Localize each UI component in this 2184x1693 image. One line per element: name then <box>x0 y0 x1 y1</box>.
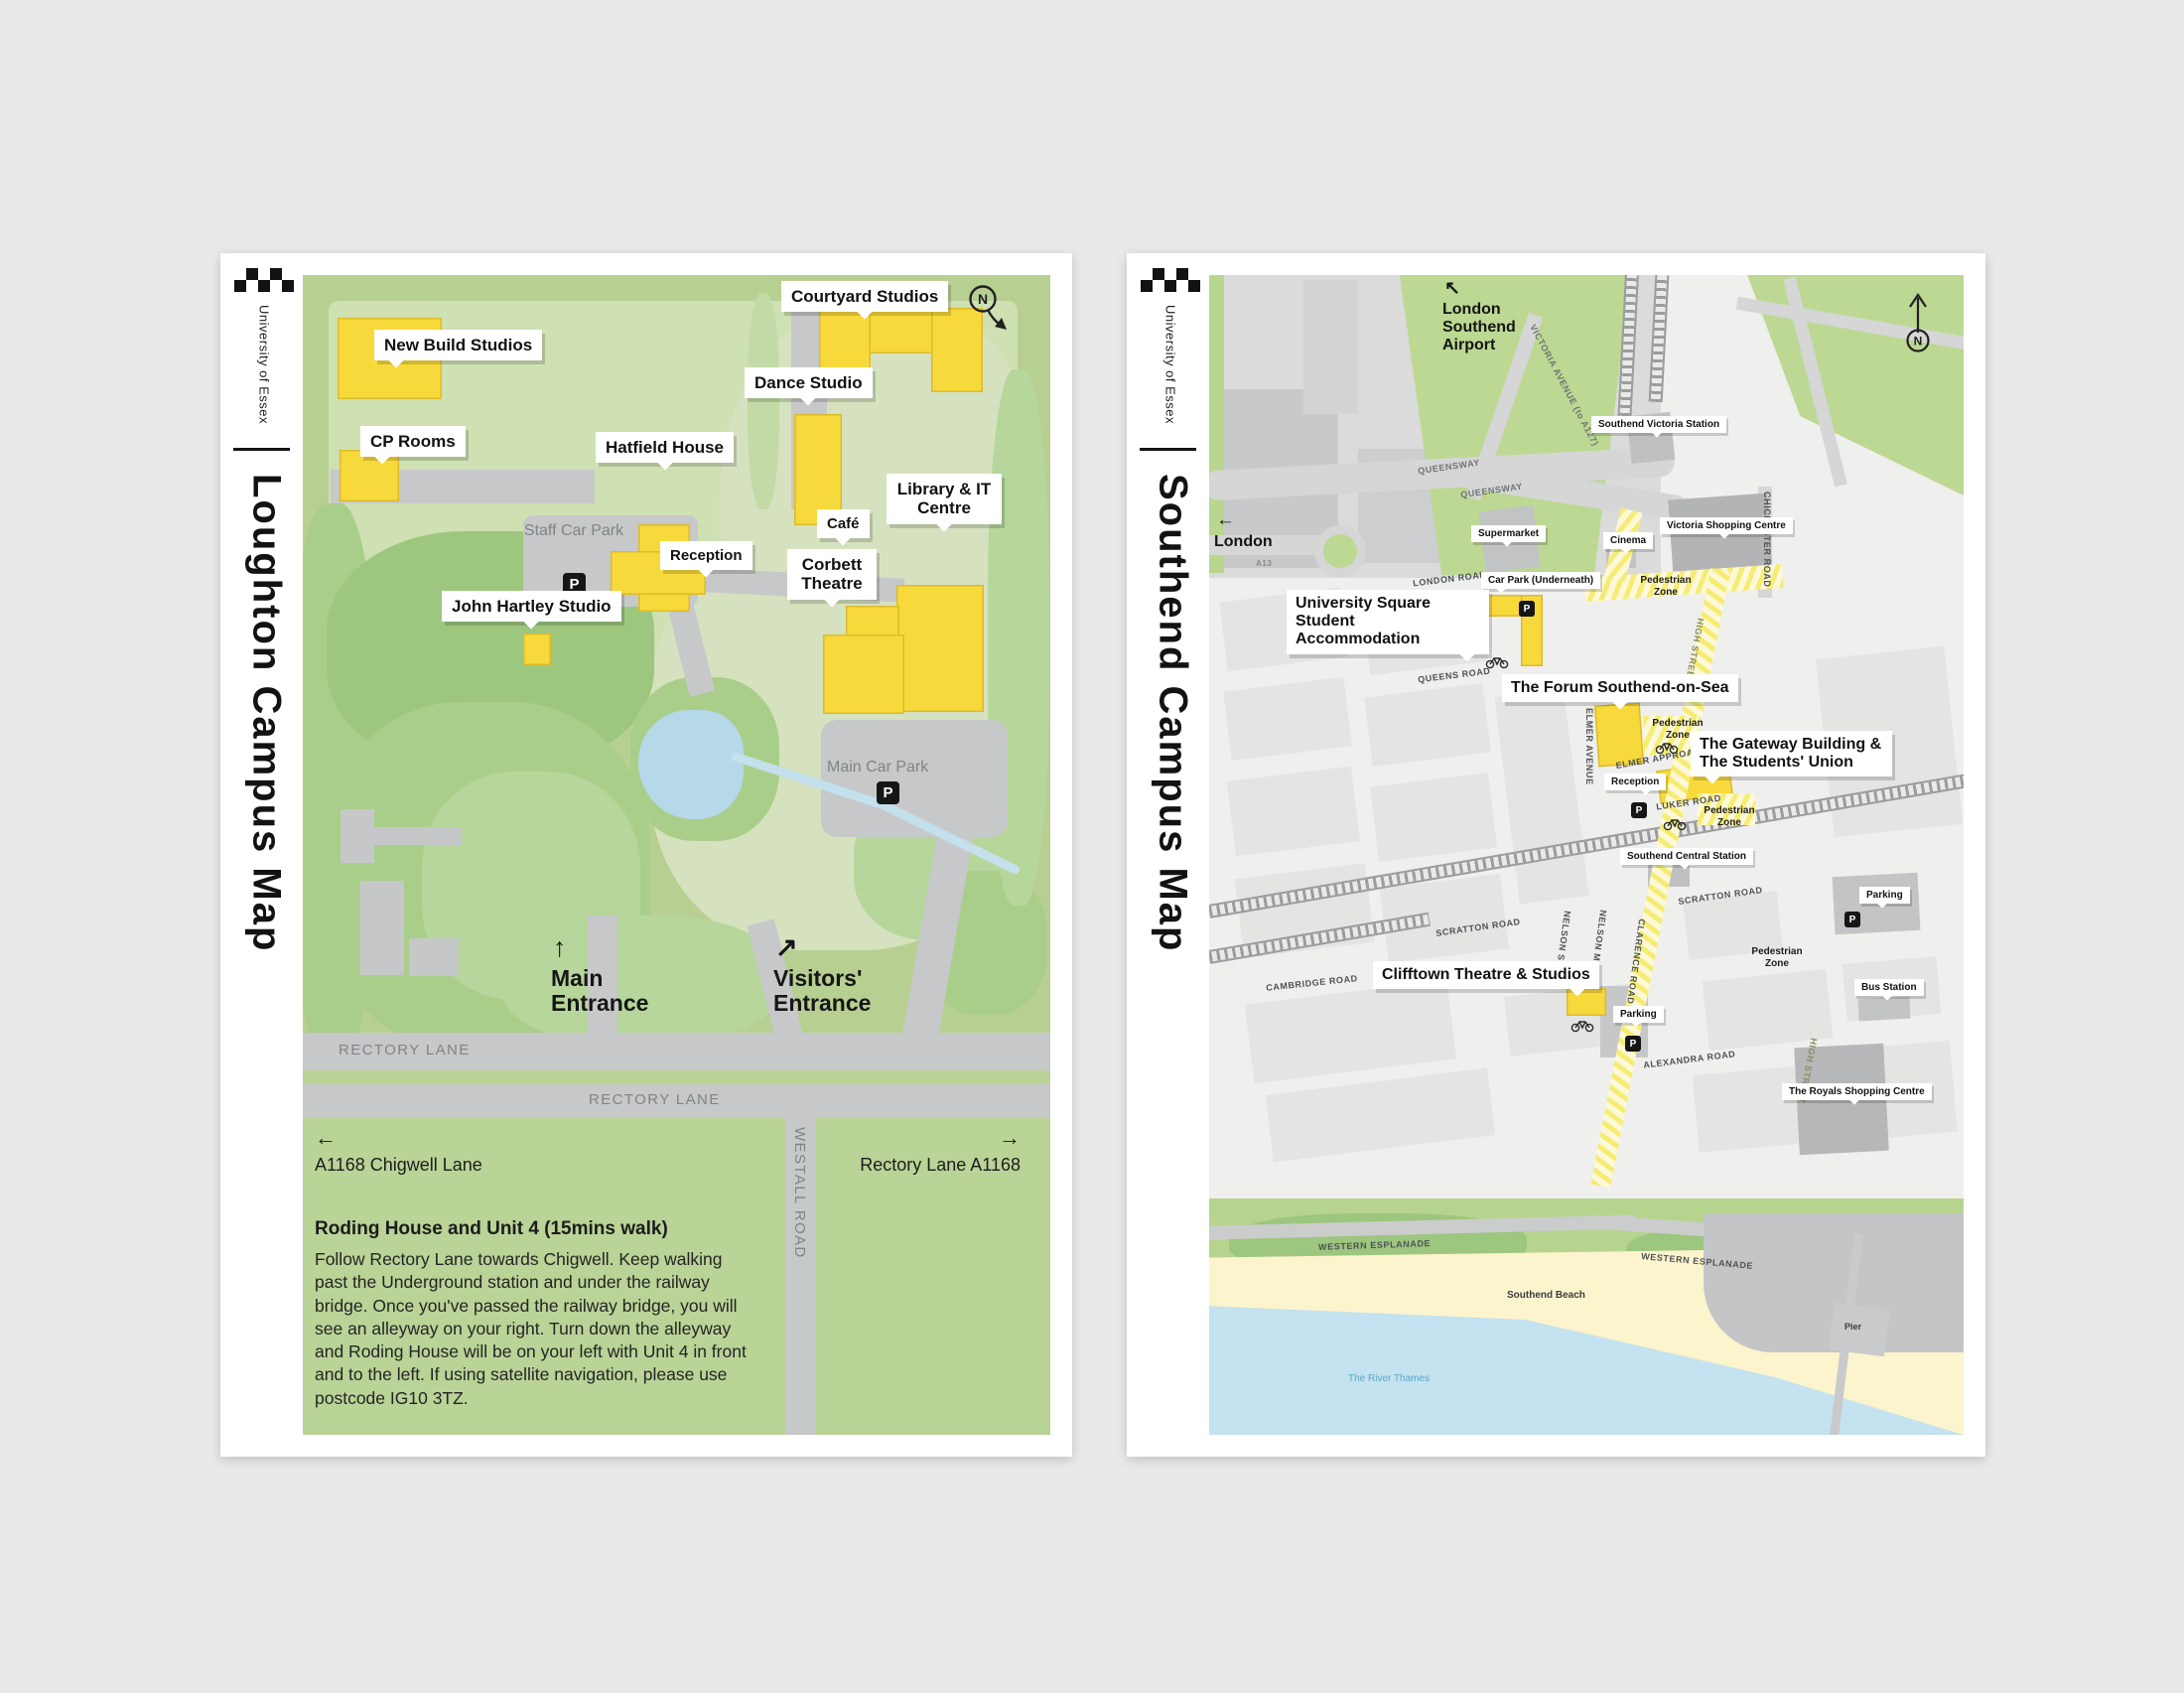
callout-library-it-centre: Library & IT Centre <box>887 474 1002 524</box>
pedestrian-zone-label: Pedestrian Zone <box>1698 805 1761 828</box>
north-arrow-icon: N <box>1904 291 1932 353</box>
a13-label: A13 <box>1256 559 1272 568</box>
john-hartley-studio-building <box>523 634 551 665</box>
callout-clifftown-theatre: Clifftown Theatre & Studios <box>1373 961 1599 989</box>
building <box>341 809 374 863</box>
bicycle-icon <box>1655 740 1679 755</box>
pond <box>638 710 744 819</box>
callout-cp-rooms: CP Rooms <box>360 426 466 457</box>
callout-cafe: Café <box>817 509 870 538</box>
london-label: London <box>1214 533 1273 551</box>
building <box>1303 280 1358 414</box>
page: University of Essex Loughton Campus Map <box>0 0 2184 1693</box>
visitors-entrance-arrow: ↗ <box>775 932 798 963</box>
loughton-map-card: University of Essex Loughton Campus Map <box>220 253 1072 1457</box>
driveway <box>372 827 462 845</box>
map-title: Loughton Campus Map <box>244 474 289 952</box>
rectory-a1168-arrow: → <box>999 1125 1021 1151</box>
airport-arrow: ↖ <box>1444 277 1460 300</box>
city-block <box>1364 683 1491 767</box>
callout-victoria-shopping-centre: Victoria Shopping Centre <box>1660 517 1793 534</box>
tree-row <box>748 293 779 509</box>
pedestrian-zone-label: Pedestrian Zone <box>1745 946 1809 969</box>
bicycle-icon <box>1570 1018 1594 1033</box>
university-of-essex-logo-icon <box>233 265 295 293</box>
building <box>360 881 404 975</box>
bus-station-building <box>1857 997 1910 1022</box>
city-block <box>1227 767 1360 857</box>
chigwell-lane-label: A1168 Chigwell Lane <box>315 1155 482 1176</box>
southend-sidebar: University of Essex Southend Campus Map <box>1127 253 1210 1457</box>
parking-icon: P <box>1844 912 1860 927</box>
alexandra-road-label: ALEXANDRA ROAD <box>1643 1049 1736 1069</box>
callout-parking: Parking <box>1859 887 1910 904</box>
southend-beach-label: Southend Beach <box>1507 1290 1585 1301</box>
callout-dance-studio: Dance Studio <box>745 367 873 398</box>
pier-label: Pier <box>1844 1322 1861 1332</box>
main-entrance-label: Main Entrance <box>551 966 690 1015</box>
building <box>409 938 459 976</box>
callout-bus-station: Bus Station <box>1854 979 1924 996</box>
svg-text:N: N <box>978 291 988 307</box>
directions-body: Follow Rectory Lane towards Chigwell. Ke… <box>315 1248 750 1410</box>
sidebar-divider <box>233 448 290 451</box>
callout-hatfield-house: Hatfield House <box>596 432 734 463</box>
sidebar-divider <box>1140 448 1196 451</box>
callout-reception: Reception <box>1604 774 1666 790</box>
callout-southend-victoria-station: Southend Victoria Station <box>1591 416 1726 433</box>
cambridge-road-label: CAMBRIDGE ROAD <box>1266 973 1358 993</box>
roundabout <box>1314 525 1366 577</box>
london-arrow: ← <box>1216 509 1235 531</box>
staff-car-park-label: Staff Car Park <box>519 521 628 540</box>
westall-road-label: WESTALL ROAD <box>791 1127 808 1259</box>
svg-text:N: N <box>1914 335 1923 349</box>
southend-map-card: University of Essex Southend Campus Map <box>1127 253 1985 1457</box>
city-block <box>1266 1068 1496 1163</box>
callout-new-build-studios: New Build Studios <box>374 330 542 360</box>
main-entrance-arrow: ↑ <box>553 932 567 963</box>
cp-rooms-building <box>340 450 399 501</box>
brand-name: University of Essex <box>1163 305 1178 424</box>
callout-car-park-underneath: Car Park (Underneath) <box>1481 572 1600 589</box>
airport-label: London Southend Airport <box>1442 301 1542 354</box>
bicycle-icon <box>1663 816 1687 831</box>
verge <box>303 1070 1050 1084</box>
city-block <box>1223 677 1352 761</box>
brand-name: University of Essex <box>257 305 272 424</box>
main-car-park-label: Main Car Park <box>827 758 928 776</box>
callout-gateway-building: The Gateway Building & The Students' Uni… <box>1691 731 1892 776</box>
callout-reception: Reception <box>660 541 752 570</box>
callout-courtyard-studios: Courtyard Studios <box>781 281 948 312</box>
river-thames-label: The River Thames <box>1348 1373 1430 1384</box>
rectory-lane-label: RECTORY LANE <box>339 1042 471 1058</box>
map-title: Southend Campus Map <box>1151 474 1195 952</box>
elmer-avenue-label: ELMER AVENUE <box>1584 708 1594 785</box>
rectory-a1168-label: Rectory Lane A1168 <box>860 1155 1021 1176</box>
loughton-map-canvas: P P Staff Car Park Main Car Park RECTORY… <box>303 275 1050 1435</box>
parking-icon: P <box>1631 802 1647 818</box>
callout-forum: The Forum Southend-on-Sea <box>1502 674 1738 702</box>
chichester-road-label: CHICHESTER ROAD <box>1762 492 1772 588</box>
directions-heading: Roding House and Unit 4 (15mins walk) <box>315 1218 668 1240</box>
southend-map-canvas: P P P P ↖ London Southend Airport ← Lond… <box>1209 275 1964 1435</box>
pedestrian-zone-label: Pedestrian Zone <box>1634 575 1698 598</box>
parking-icon: P <box>877 781 899 804</box>
corbett-theatre-building <box>823 635 904 714</box>
city-block <box>1245 980 1456 1083</box>
callout-southend-central-station: Southend Central Station <box>1620 848 1753 865</box>
city-block <box>1494 689 1588 905</box>
north-arrow-icon: N <box>960 283 1018 341</box>
university-of-essex-logo-icon <box>1140 265 1201 293</box>
rectory-lane-label: RECTORY LANE <box>589 1091 721 1108</box>
bicycle-icon <box>1485 654 1509 669</box>
queens-road-label: QUEENS ROAD <box>1418 666 1491 685</box>
loughton-sidebar: University of Essex Loughton Campus Map <box>220 253 304 1457</box>
chigwell-arrow: ← <box>315 1125 337 1151</box>
callout-parking: Parking <box>1613 1006 1664 1023</box>
callout-supermarket: Supermarket <box>1471 525 1546 542</box>
callout-cinema: Cinema <box>1603 532 1653 549</box>
library-it-centre-building <box>896 585 984 712</box>
visitors-entrance-label: Visitors' Entrance <box>773 966 912 1015</box>
callout-university-square: University Square Student Accommodation <box>1287 590 1489 654</box>
callout-corbett-theatre: Corbett Theatre <box>787 549 877 600</box>
parking-icon: P <box>1625 1036 1641 1052</box>
city-block <box>1370 773 1497 862</box>
callout-john-hartley-studio: John Hartley Studio <box>442 591 621 622</box>
callout-royals-shopping-centre: The Royals Shopping Centre <box>1782 1083 1932 1100</box>
parking-icon: P <box>1519 601 1535 617</box>
